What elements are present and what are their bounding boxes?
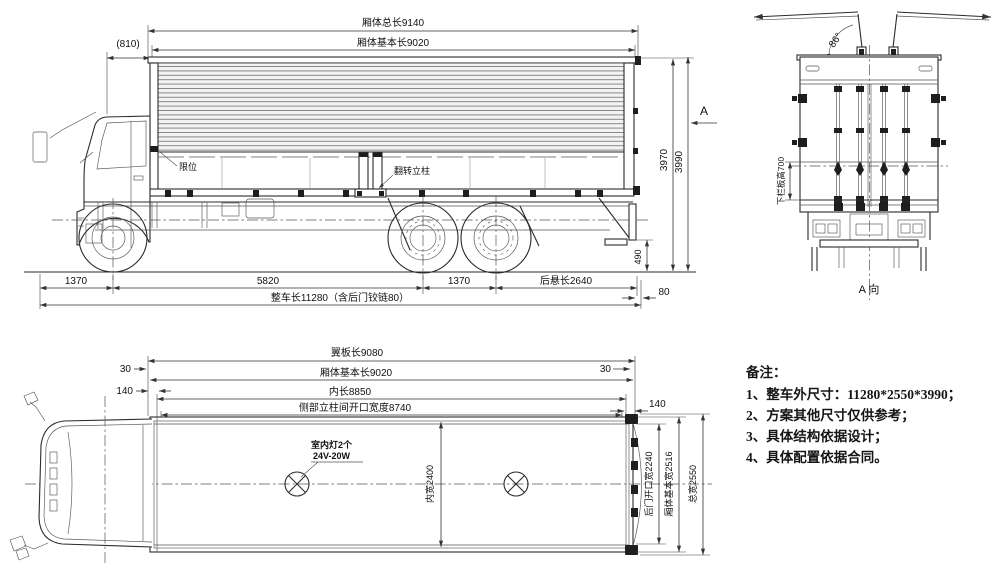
dim-lower-panel-height: 下栏板高700: [776, 157, 786, 205]
note-item-4: 4、具体配置依据合同。: [746, 449, 888, 465]
dim-overall-width: 总宽2550: [687, 465, 698, 503]
dim-tandem-spacing: 1370: [448, 276, 471, 287]
mud-flap-2: [520, 206, 539, 246]
dim-height-3970: 3970: [659, 148, 670, 171]
plan-width-dimensions: 后门开口宽2240 厢体基本宽2516 总宽2550: [636, 414, 710, 555]
truck-engineering-drawing: 厢体总长9140 厢体基本长9020 (810): [0, 0, 1000, 570]
cab-outline: [77, 116, 150, 245]
note-item-2: 2、方案其他尺寸仅供参考；: [746, 407, 915, 424]
cab-side: [33, 112, 150, 248]
box-rear-post: [624, 63, 634, 190]
dim-top-box-basic-length: 厢体基本长9020: [320, 366, 393, 379]
dim-box-basic-width: 厢体基本宽2516: [663, 451, 674, 516]
dim-490: 490: [633, 249, 643, 264]
dim-left-30: 30: [120, 364, 132, 375]
label-lamp-line1: 室内灯2个: [311, 439, 353, 450]
rear-wheel-2: [461, 196, 531, 280]
label-flip-pillar: 翻转立柱: [394, 165, 430, 176]
dim-wheelbase: 5820: [257, 276, 280, 287]
dim-box-total-length: 厢体总长9140: [362, 16, 425, 29]
dim-box-basic-length: 厢体基本长9020: [357, 36, 430, 49]
box-front-post: [150, 63, 158, 190]
cargo-box-rear: [790, 45, 948, 300]
side-view: 厢体总长9140 厢体基本长9020 (810): [24, 16, 717, 309]
box-floor-rail: [150, 189, 634, 196]
notes-title: 备注：: [745, 364, 787, 380]
underrun-brace: [599, 198, 630, 239]
mirror-bottom-2: [16, 548, 29, 560]
mirror-arm-top: [30, 402, 45, 421]
dim-overall-length: 整车长11280（含后门铰链80）: [271, 291, 409, 304]
drawing-canvas: 厢体总长9140 厢体基本长9020 (810): [0, 0, 1000, 570]
mirror-arm: [50, 112, 96, 138]
dim-front-overhang: 1370: [65, 276, 88, 287]
rear-underrun-step: [605, 239, 627, 245]
dim-right-140: 140: [649, 399, 666, 410]
rear-corner-bracket-top: [625, 414, 638, 424]
top-view: 翼板长9080 厢体基本长9020 内长8850 侧部立柱间开口宽度8740 3…: [10, 346, 712, 566]
limit-stop-block: [150, 146, 158, 152]
notes-block: 备注： 1、整车外尺寸：11280*2550*3990； 2、方案其他尺寸仅供参…: [745, 364, 961, 465]
rear-wheel-1: [388, 196, 458, 280]
rear-corner-bracket-bottom: [625, 545, 638, 555]
rear-view: 86°: [754, 12, 991, 300]
dim-pillar-opening: 侧部立柱间开口宽度8740: [299, 401, 412, 414]
dim-rear-door-opening: 后门开口宽2240: [643, 451, 654, 516]
dim-inner-length: 内长8850: [329, 385, 372, 398]
view-direction-label: A 向: [859, 282, 880, 296]
dim-right-30: 30: [600, 364, 612, 375]
mirror-arm-bottom: [24, 543, 48, 549]
dim-wing-angle: 86°: [827, 31, 845, 50]
front-mirror: [33, 132, 47, 162]
dim-inner-width: 内宽2400: [424, 465, 435, 503]
note-item-1: 1、整车外尺寸：11280*2550*3990；: [746, 386, 961, 403]
wing-ribbed-panel: [158, 63, 624, 152]
battery-box: [222, 203, 239, 216]
dim-height-3990: 3990: [674, 150, 685, 173]
rear-underrun-post: [629, 204, 636, 240]
box-top-rail: [148, 57, 640, 63]
rear-underbody: [808, 212, 930, 271]
open-wings: [754, 12, 991, 60]
dim-hinge-80: 80: [658, 287, 670, 298]
rear-bottom-hinge: [633, 186, 640, 195]
rear-top-hinge: [635, 56, 641, 65]
bottom-dimensions: 1370 5820 1370 后悬长2640 80 整车长11280（含后门铰链…: [40, 274, 670, 309]
dim-left-140: 140: [116, 386, 133, 397]
label-lamp-line2: 24V-20W: [313, 451, 351, 461]
flip-pillar: [355, 153, 386, 197]
dim-rear-overhang: 后悬长2640: [540, 275, 593, 287]
dim-cab-gap: (810): [116, 39, 139, 50]
cab-plan: [10, 392, 152, 566]
section-letter: A: [700, 104, 708, 118]
dim-wing-plate-length: 翼板长9080: [331, 346, 384, 359]
label-limit-stop: 限位: [179, 161, 197, 172]
note-item-3: 3、具体结构依据设计；: [746, 428, 888, 445]
